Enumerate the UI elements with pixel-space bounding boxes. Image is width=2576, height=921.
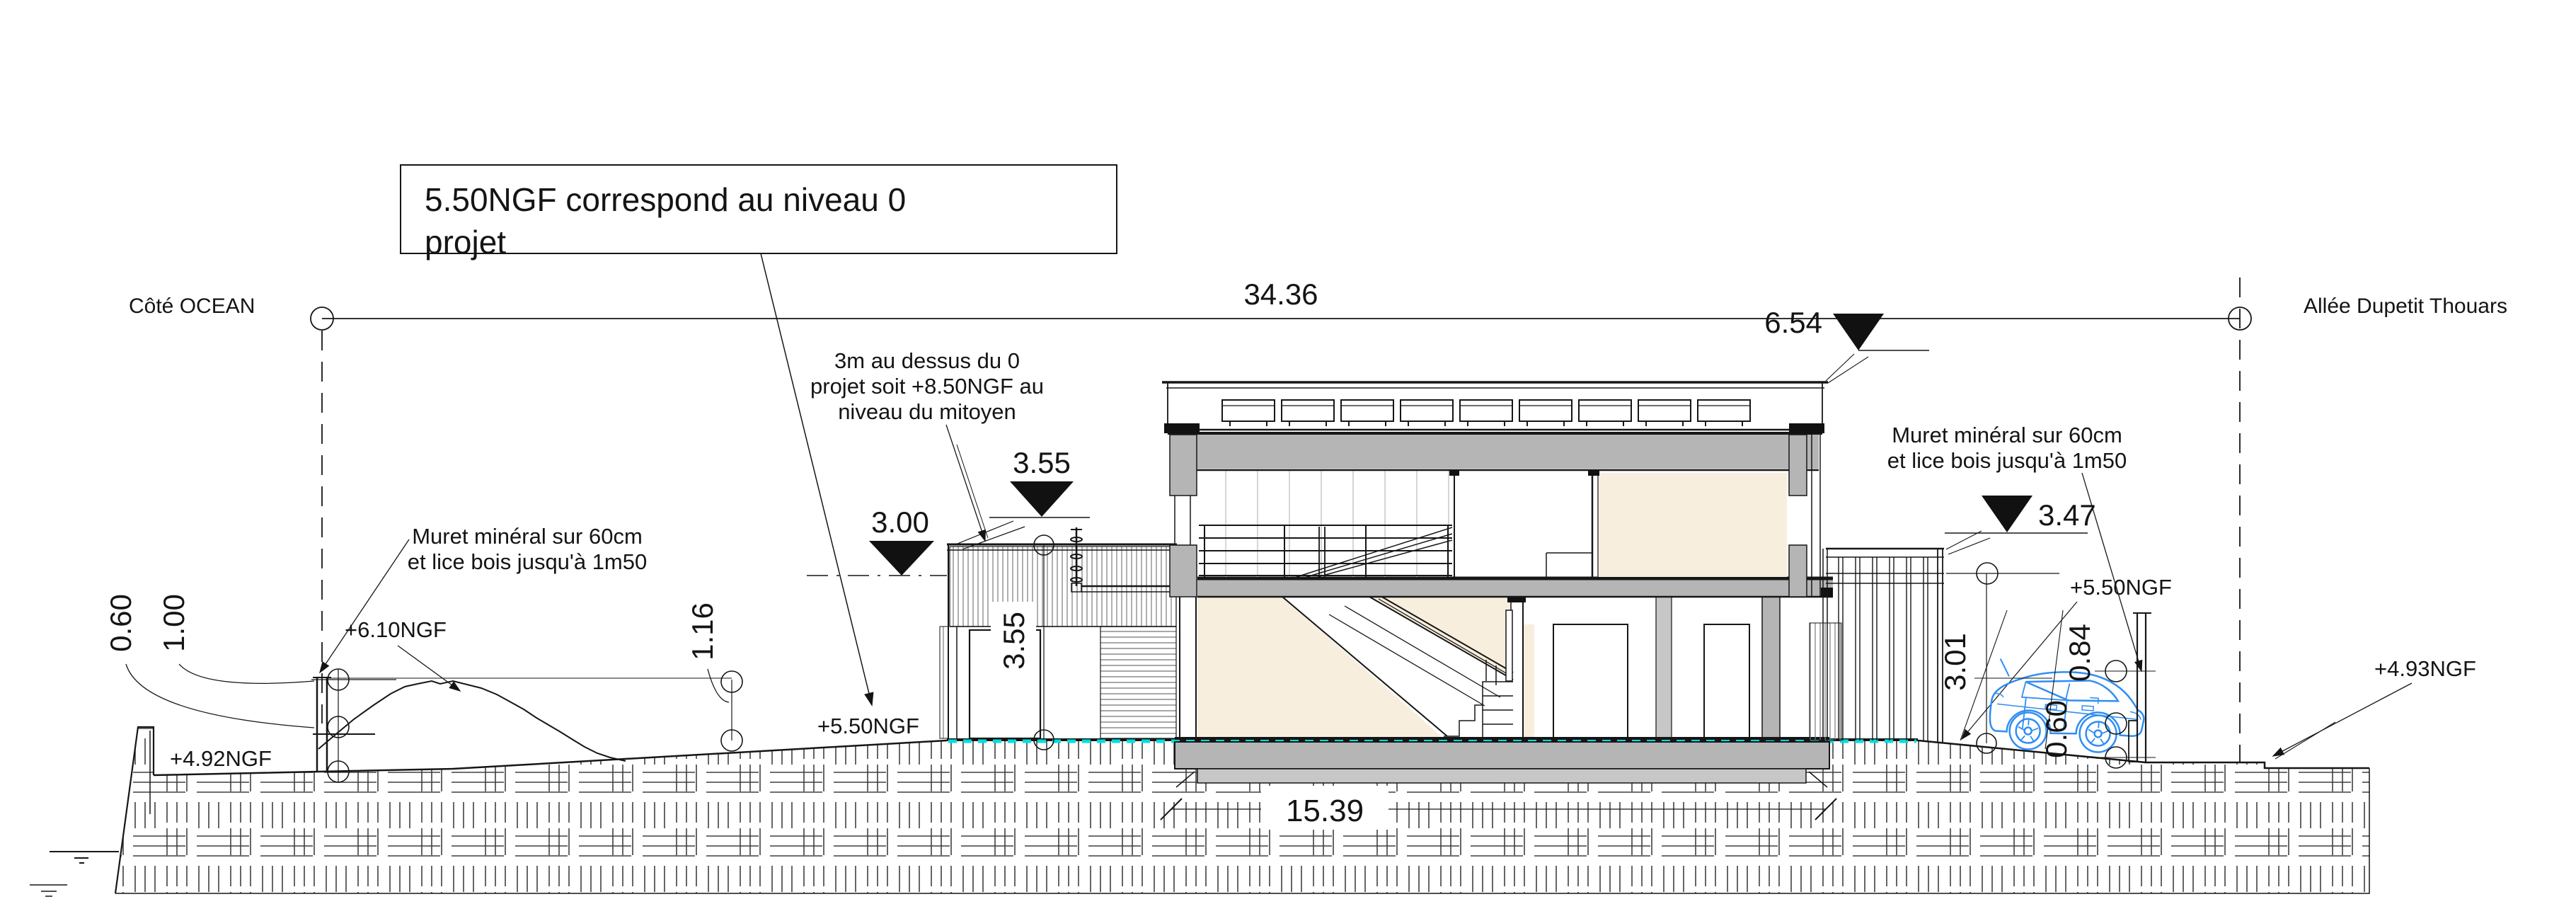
left-wall xyxy=(1170,435,1197,597)
overall-dimension: 34.36 xyxy=(311,278,2251,330)
dim-annex-height: 3.55 xyxy=(997,612,1030,670)
dim-building-height: 6.54 xyxy=(1764,306,1822,339)
dim-right-height: 3.01 xyxy=(1938,633,1972,691)
level-ngf-492: +4.92NGF xyxy=(170,746,272,771)
level-marker-654: 6.54 xyxy=(1764,306,1929,383)
dim-mitoyen-level: 3.00 xyxy=(871,505,929,539)
level-493: +4.93NGF xyxy=(2273,656,2476,759)
building-section xyxy=(1162,382,1833,787)
garage-annex: 3.55 xyxy=(940,527,1177,750)
dim-right-lice: 0.84 xyxy=(2063,624,2096,682)
terrain-mound xyxy=(318,681,626,761)
dim-building-width: 15.39 xyxy=(1286,794,1364,828)
dim-left-wall: 1.16 xyxy=(686,602,719,660)
level-ngf-550-left: +5.50NGF xyxy=(817,714,919,738)
muret-left-line2: et lice bois jusqu'à 1m50 xyxy=(408,549,648,574)
fence-level-marker-347: 3.47 xyxy=(1945,496,2096,554)
dim-total-width: 34.36 xyxy=(1243,278,1318,311)
roof-panels xyxy=(1222,400,1750,426)
left-muret-note: Muret minéral sur 60cm et lice bois jusq… xyxy=(320,524,647,673)
dim-annex-level: 3.55 xyxy=(1013,446,1071,479)
water-level-symbol xyxy=(30,852,119,896)
note-box-line2: projet xyxy=(425,224,506,261)
dim-left-lice: 1.00 xyxy=(157,594,190,652)
level-ngf-493: +4.93NGF xyxy=(2374,656,2476,681)
mitoyen-note-line2: projet soit +8.50NGF au xyxy=(810,374,1044,399)
side-label-ocean: Côté OCEAN xyxy=(129,294,255,318)
muret-right-line2: et lice bois jusqu'à 1m50 xyxy=(1887,448,2127,473)
dim-right-muret: 0.60 xyxy=(2040,700,2073,758)
level-ngf-610: +6.10NGF xyxy=(345,617,447,642)
mitoyen-note-line3: niveau du mitoyen xyxy=(838,399,1016,424)
dim-left-muret: 0.60 xyxy=(104,594,137,652)
level-ngf-550-right: +5.50NGF xyxy=(2070,575,2172,600)
right-muret-note: Muret minéral sur 60cm et lice bois jusq… xyxy=(1887,423,2141,671)
side-label-allee: Allée Dupetit Thouars xyxy=(2304,294,2507,318)
muret-right-line1: Muret minéral sur 60cm xyxy=(1892,423,2122,447)
architectural-section-canvas: 34.36 Côté OCEAN Allée Dupetit Thouars 5… xyxy=(0,0,2576,921)
dim-fence-level: 3.47 xyxy=(2038,498,2096,532)
note-box-line1: 5.50NGF correspond au niveau 0 xyxy=(425,181,906,218)
level-marker-300: 3.00 xyxy=(807,505,947,576)
muret-left-line1: Muret minéral sur 60cm xyxy=(412,524,643,549)
section-drawing: 34.36 Côté OCEAN Allée Dupetit Thouars 5… xyxy=(0,0,2576,921)
mitoyen-note-line1: 3m au dessus du 0 xyxy=(834,348,1020,373)
